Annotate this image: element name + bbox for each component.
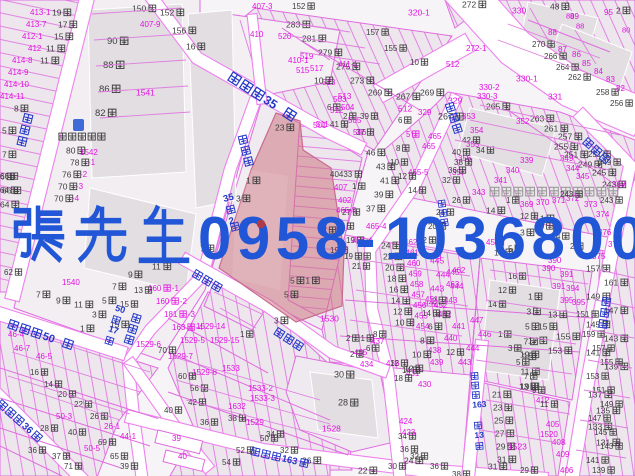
svg-text:413-1: 413-1 <box>30 8 51 17</box>
svg-text:88: 88 <box>576 22 584 31</box>
svg-text:270: 270 <box>532 40 546 49</box>
svg-text:32: 32 <box>442 176 451 185</box>
svg-text:261: 261 <box>544 123 558 133</box>
svg-text:407-3: 407-3 <box>252 2 273 11</box>
svg-text:26: 26 <box>90 412 99 421</box>
svg-text:1: 1 <box>80 323 85 333</box>
svg-text:1: 1 <box>352 182 357 191</box>
svg-text:3: 3 <box>508 344 513 353</box>
svg-text:14: 14 <box>391 295 401 305</box>
svg-text:70: 70 <box>158 346 167 355</box>
svg-text:16: 16 <box>186 41 196 51</box>
svg-text:84: 84 <box>594 67 603 76</box>
svg-text:243: 243 <box>600 196 614 205</box>
svg-text:340: 340 <box>506 166 520 175</box>
svg-text:70: 70 <box>54 193 64 203</box>
svg-text:434: 434 <box>360 360 374 369</box>
svg-text:43: 43 <box>376 161 386 171</box>
svg-text:31: 31 <box>488 461 498 471</box>
svg-text:39: 39 <box>172 434 181 443</box>
svg-text:181: 181 <box>164 310 178 319</box>
svg-text:26: 26 <box>452 196 461 205</box>
svg-text:273: 273 <box>350 75 364 85</box>
svg-text:341: 341 <box>494 176 508 185</box>
svg-text:9: 9 <box>128 269 133 279</box>
svg-text:23: 23 <box>493 402 503 412</box>
svg-text:30: 30 <box>334 370 344 380</box>
svg-text:62: 62 <box>4 268 13 277</box>
svg-text:2: 2 <box>346 334 351 343</box>
svg-text:147: 147 <box>604 305 618 315</box>
svg-text:19: 19 <box>520 381 530 391</box>
svg-text:40: 40 <box>68 428 77 437</box>
svg-text:37: 37 <box>356 128 365 137</box>
svg-text:10: 10 <box>314 75 324 85</box>
svg-text:-3: -3 <box>76 182 84 191</box>
svg-text:272-1: 272-1 <box>466 44 487 53</box>
svg-text:12: 12 <box>390 359 399 368</box>
svg-text:19: 19 <box>520 349 530 359</box>
svg-text:37: 37 <box>52 452 61 461</box>
svg-text:391: 391 <box>552 282 566 291</box>
svg-text:36: 36 <box>448 166 457 175</box>
svg-text:3: 3 <box>274 315 279 325</box>
svg-text:1533-3: 1533-3 <box>250 394 275 403</box>
svg-text:14: 14 <box>422 309 431 318</box>
svg-text:-1: -1 <box>172 284 180 293</box>
svg-text:0958-103680: 0958-103680 <box>198 205 609 272</box>
svg-text:1542: 1542 <box>80 148 98 157</box>
svg-text:2: 2 <box>616 5 621 15</box>
svg-text:13: 13 <box>134 286 143 295</box>
svg-text:28: 28 <box>40 424 49 433</box>
svg-text:414-10: 414-10 <box>4 80 29 89</box>
svg-text:1528: 1528 <box>322 423 341 433</box>
svg-text:44-1: 44-1 <box>120 432 137 441</box>
svg-text:153: 153 <box>586 372 600 381</box>
svg-text:411-1: 411-1 <box>338 60 358 69</box>
svg-text:46-4: 46-4 <box>8 330 25 339</box>
svg-text:7: 7 <box>2 149 7 159</box>
svg-text:1: 1 <box>305 275 310 285</box>
svg-text:1533: 1533 <box>222 364 240 373</box>
svg-text:269: 269 <box>368 87 382 97</box>
svg-text:34: 34 <box>476 146 485 155</box>
svg-text:512: 512 <box>446 60 460 69</box>
svg-text:86: 86 <box>572 50 581 59</box>
svg-text:5: 5 <box>290 275 295 285</box>
svg-text:511: 511 <box>316 120 329 129</box>
svg-text:28: 28 <box>338 398 348 408</box>
svg-text:18: 18 <box>387 273 397 283</box>
svg-text:156: 156 <box>172 25 186 35</box>
svg-text:1: 1 <box>528 291 533 301</box>
svg-text:141: 141 <box>586 456 600 465</box>
svg-text:151: 151 <box>576 310 590 319</box>
svg-text:46-5: 46-5 <box>36 352 53 361</box>
svg-text:13: 13 <box>474 430 484 441</box>
svg-text:354: 354 <box>470 126 484 135</box>
svg-text:320-1: 320-1 <box>408 7 430 17</box>
svg-text:7: 7 <box>524 372 529 381</box>
svg-text:458: 458 <box>410 280 424 289</box>
svg-text:29: 29 <box>520 466 529 475</box>
svg-text:345: 345 <box>576 172 590 181</box>
svg-text:39: 39 <box>374 189 384 199</box>
svg-text:424: 424 <box>399 417 413 426</box>
svg-text:7: 7 <box>112 281 117 291</box>
svg-text:1: 1 <box>361 334 366 343</box>
svg-text:443: 443 <box>430 283 444 293</box>
svg-text:78: 78 <box>70 157 80 167</box>
svg-text:6: 6 <box>428 321 433 331</box>
svg-text:13: 13 <box>548 309 558 319</box>
svg-text:41: 41 <box>330 120 339 129</box>
svg-text:10: 10 <box>410 58 419 67</box>
svg-text:414-8: 414-8 <box>12 56 33 65</box>
svg-text:258: 258 <box>596 88 610 97</box>
svg-text:36: 36 <box>430 462 439 471</box>
svg-text:15: 15 <box>54 31 64 41</box>
svg-text:23: 23 <box>275 122 285 132</box>
svg-text:512: 512 <box>398 103 412 113</box>
svg-text:267: 267 <box>396 91 410 101</box>
svg-text:46-7: 46-7 <box>14 344 31 353</box>
svg-text:256: 256 <box>610 99 624 108</box>
svg-text:152: 152 <box>292 2 306 11</box>
svg-text:159: 159 <box>582 330 596 339</box>
svg-text:402: 402 <box>338 196 352 205</box>
svg-text:329: 329 <box>448 95 462 105</box>
svg-text:5: 5 <box>525 321 530 331</box>
svg-text:331: 331 <box>548 91 562 101</box>
svg-text:11: 11 <box>46 43 55 53</box>
svg-text:18: 18 <box>394 374 403 383</box>
svg-text:36: 36 <box>400 445 409 454</box>
svg-text:412-1: 412-1 <box>22 32 43 41</box>
svg-text:339: 339 <box>520 156 534 165</box>
svg-text:3: 3 <box>527 306 532 316</box>
svg-text:16: 16 <box>389 284 399 294</box>
svg-text:50: 50 <box>260 434 269 443</box>
svg-text:89: 89 <box>570 12 579 21</box>
svg-text:-2: -2 <box>80 170 88 179</box>
svg-text:39: 39 <box>120 462 129 471</box>
svg-text:157: 157 <box>366 28 380 37</box>
svg-text:12: 12 <box>446 348 455 357</box>
svg-text:150: 150 <box>132 3 146 13</box>
svg-text:394: 394 <box>566 284 580 293</box>
svg-text:-3: -3 <box>188 310 196 319</box>
svg-text:8: 8 <box>396 144 401 153</box>
svg-text:410-1: 410-1 <box>288 56 309 65</box>
svg-text:1: 1 <box>498 330 503 339</box>
svg-text:139: 139 <box>592 466 606 475</box>
svg-text:413-7: 413-7 <box>26 20 47 29</box>
svg-text:48: 48 <box>550 1 560 11</box>
svg-text:60: 60 <box>178 372 187 381</box>
svg-text:163: 163 <box>172 323 186 332</box>
svg-text:90: 90 <box>107 36 118 47</box>
svg-text:52: 52 <box>236 446 245 455</box>
svg-text:14: 14 <box>408 186 417 195</box>
svg-text:513: 513 <box>338 92 352 101</box>
svg-text:155: 155 <box>384 44 398 53</box>
svg-text:1530: 1530 <box>320 313 339 323</box>
svg-text:21: 21 <box>492 389 502 399</box>
svg-text:-1: -1 <box>88 158 96 167</box>
svg-text:22: 22 <box>358 465 368 475</box>
svg-text:12: 12 <box>404 363 414 373</box>
svg-text:50-3: 50-3 <box>56 412 73 421</box>
svg-text:405: 405 <box>546 420 560 429</box>
svg-text:66: 66 <box>0 172 9 181</box>
svg-text:38: 38 <box>228 414 237 423</box>
svg-text:36: 36 <box>200 418 209 427</box>
svg-text:82: 82 <box>616 84 625 93</box>
svg-text:353: 353 <box>462 112 476 121</box>
svg-text:10: 10 <box>390 158 399 167</box>
svg-text:87: 87 <box>558 45 567 54</box>
svg-text:465: 465 <box>422 142 436 151</box>
svg-text:155: 155 <box>556 331 570 341</box>
svg-text:-4: -4 <box>72 194 80 203</box>
svg-text:11: 11 <box>74 299 83 309</box>
svg-text:71: 71 <box>64 462 73 471</box>
svg-text:39: 39 <box>360 112 369 121</box>
svg-text:435: 435 <box>354 348 368 357</box>
svg-text:1632: 1632 <box>228 402 246 411</box>
svg-text:9: 9 <box>56 295 61 305</box>
svg-text:64: 64 <box>0 186 9 195</box>
svg-text:439: 439 <box>430 358 444 367</box>
svg-text:-4: -4 <box>196 323 204 332</box>
svg-text:11: 11 <box>540 400 549 409</box>
svg-text:262: 262 <box>568 73 582 82</box>
svg-text:54: 54 <box>222 458 231 467</box>
svg-text:406: 406 <box>560 466 574 475</box>
svg-text:17: 17 <box>58 19 68 29</box>
svg-text:86: 86 <box>99 84 110 95</box>
svg-text:3: 3 <box>92 309 97 319</box>
svg-text:9: 9 <box>532 386 537 395</box>
svg-text:444: 444 <box>466 344 480 353</box>
svg-text:1529-15: 1529-15 <box>210 336 240 345</box>
svg-text:40: 40 <box>178 452 187 461</box>
svg-text:465: 465 <box>428 132 442 141</box>
svg-text:407: 407 <box>334 183 348 192</box>
svg-text:1540: 1540 <box>62 278 80 287</box>
svg-text:11: 11 <box>40 55 49 65</box>
svg-text:143: 143 <box>600 442 614 451</box>
svg-text:6: 6 <box>398 116 403 125</box>
svg-text:5: 5 <box>102 295 107 305</box>
svg-text:407-9: 407-9 <box>140 20 161 29</box>
svg-text:330-2: 330-2 <box>479 83 500 92</box>
svg-text:343: 343 <box>472 188 486 197</box>
svg-text:1523: 1523 <box>508 441 527 451</box>
svg-text:70: 70 <box>58 181 68 191</box>
svg-text:64: 64 <box>0 199 10 209</box>
svg-text:83: 83 <box>606 75 615 84</box>
svg-text:463: 463 <box>446 280 460 289</box>
svg-text:352: 352 <box>516 117 530 126</box>
svg-text:76: 76 <box>62 169 72 179</box>
svg-text:29: 29 <box>496 441 506 451</box>
svg-text:243: 243 <box>560 190 574 199</box>
svg-text:395: 395 <box>572 298 586 307</box>
svg-text:40: 40 <box>164 406 173 415</box>
svg-text:36: 36 <box>28 446 37 455</box>
svg-text:515: 515 <box>296 66 310 75</box>
svg-text:80: 80 <box>622 26 630 35</box>
svg-text:269: 269 <box>420 87 434 97</box>
svg-text:19: 19 <box>52 7 62 17</box>
svg-text:25: 25 <box>494 415 504 425</box>
svg-text:149: 149 <box>586 291 600 301</box>
svg-text:330-1: 330-1 <box>516 73 538 83</box>
svg-text:517: 517 <box>310 64 324 73</box>
svg-text:1: 1 <box>246 175 251 185</box>
svg-text:32: 32 <box>410 452 419 461</box>
svg-text:88: 88 <box>548 28 557 37</box>
svg-text:520: 520 <box>278 32 292 41</box>
svg-text:8: 8 <box>14 103 19 113</box>
svg-text:1529: 1529 <box>246 418 264 427</box>
svg-text:414-11: 414-11 <box>0 92 25 101</box>
svg-text:161: 161 <box>604 277 618 287</box>
svg-text:41: 41 <box>380 175 390 185</box>
svg-text:160: 160 <box>156 297 170 306</box>
svg-text:409: 409 <box>556 450 570 459</box>
svg-text:145: 145 <box>586 319 600 329</box>
svg-text:145: 145 <box>594 428 608 437</box>
svg-text:330: 330 <box>512 5 526 15</box>
svg-text:40: 40 <box>452 148 461 157</box>
svg-text:423: 423 <box>402 428 416 437</box>
svg-text:1520: 1520 <box>540 430 558 439</box>
svg-text:163: 163 <box>472 399 487 410</box>
svg-text:512: 512 <box>330 106 344 115</box>
svg-text:46: 46 <box>366 147 376 157</box>
svg-text:85: 85 <box>582 59 591 68</box>
svg-text:447: 447 <box>470 316 484 325</box>
svg-text:10: 10 <box>412 349 422 359</box>
svg-text:443: 443 <box>458 358 472 367</box>
svg-text:12: 12 <box>393 306 403 316</box>
svg-text:95: 95 <box>604 8 613 17</box>
svg-text:4: 4 <box>436 309 441 319</box>
svg-text:15: 15 <box>538 321 548 331</box>
svg-text:414-9: 414-9 <box>8 68 29 77</box>
svg-text:80: 80 <box>66 145 76 155</box>
svg-text:0: 0 <box>611 205 635 272</box>
svg-text:12: 12 <box>398 172 407 181</box>
svg-text:1: 1 <box>240 330 245 339</box>
svg-text:157: 157 <box>592 344 606 353</box>
svg-text:65: 65 <box>110 452 119 461</box>
svg-text:441: 441 <box>452 322 466 331</box>
svg-text:412: 412 <box>28 44 42 53</box>
svg-text:3: 3 <box>236 193 241 203</box>
svg-text:369: 369 <box>612 180 626 189</box>
svg-text:272: 272 <box>462 0 476 9</box>
svg-text:5: 5 <box>284 289 289 299</box>
svg-text:8: 8 <box>420 335 425 345</box>
svg-text:2: 2 <box>432 295 437 305</box>
svg-text:430: 430 <box>418 380 432 389</box>
svg-text:42: 42 <box>462 136 471 145</box>
svg-text:12: 12 <box>498 286 507 295</box>
svg-text:40433: 40433 <box>330 170 353 179</box>
svg-text:5: 5 <box>2 125 7 135</box>
svg-text:410: 410 <box>250 30 264 39</box>
svg-text:1529-5: 1529-5 <box>180 336 205 345</box>
svg-text:437: 437 <box>371 337 385 346</box>
svg-text:10: 10 <box>395 317 405 327</box>
svg-text:38: 38 <box>452 470 461 476</box>
svg-text:26-1: 26-1 <box>104 422 121 431</box>
svg-text:-2: -2 <box>180 297 188 306</box>
svg-text:329: 329 <box>418 108 432 117</box>
svg-text:7: 7 <box>36 289 41 299</box>
svg-text:1: 1 <box>506 196 511 205</box>
svg-text:16: 16 <box>30 368 39 377</box>
svg-text:50-5: 50-5 <box>84 444 101 453</box>
svg-text:153: 153 <box>548 345 562 355</box>
svg-text:149: 149 <box>600 400 614 409</box>
svg-text:30: 30 <box>388 462 397 471</box>
svg-text:330-3: 330-3 <box>477 92 498 101</box>
svg-text:5: 5 <box>406 130 411 139</box>
